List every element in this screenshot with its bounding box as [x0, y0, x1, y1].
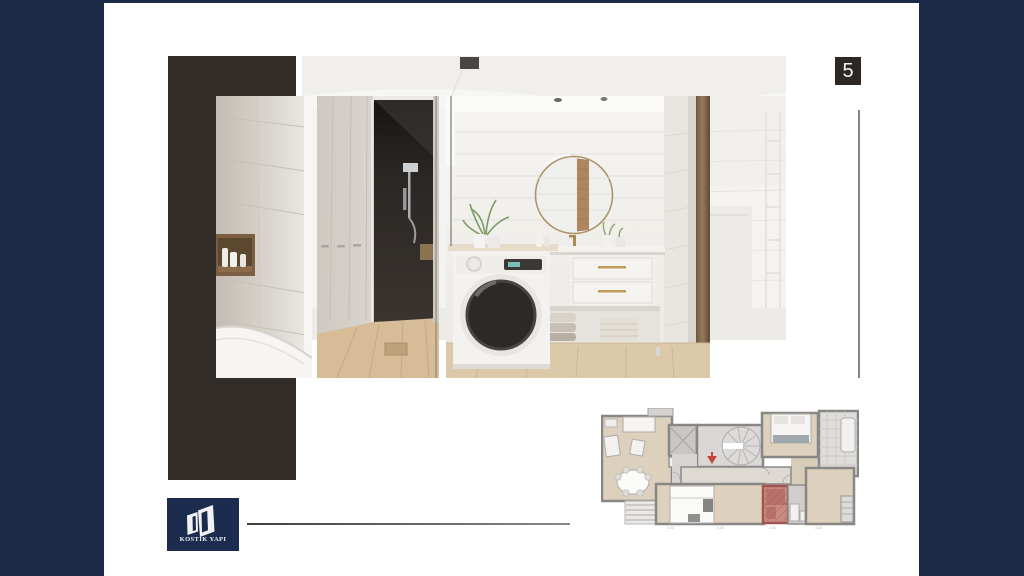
svg-text:2.45: 2.45 — [717, 526, 724, 530]
svg-text:2.60: 2.60 — [769, 526, 776, 530]
svg-text:3.20: 3.20 — [667, 526, 674, 530]
svg-text:3.15: 3.15 — [815, 526, 822, 530]
